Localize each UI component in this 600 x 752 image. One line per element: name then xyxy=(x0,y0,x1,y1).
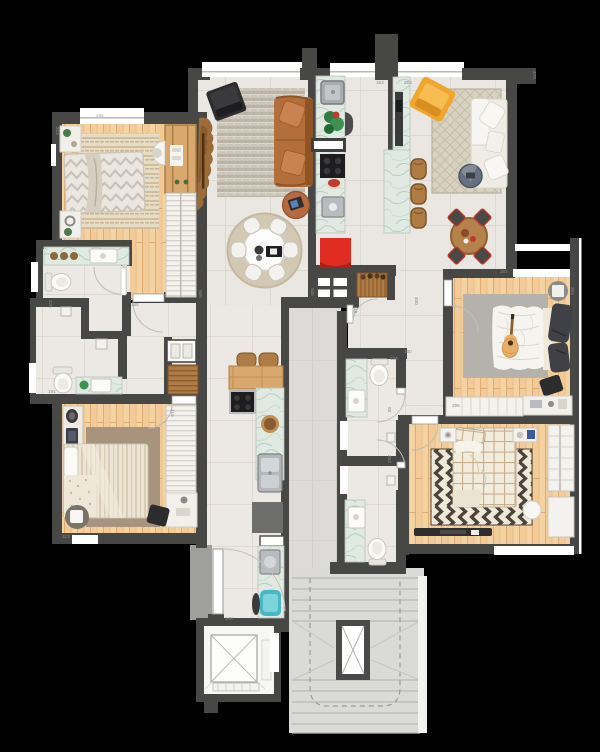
svg-text:165: 165 xyxy=(131,302,139,307)
svg-text:283: 283 xyxy=(404,80,412,85)
svg-text:283: 283 xyxy=(570,287,575,295)
svg-text:538: 538 xyxy=(310,288,315,296)
svg-text:133: 133 xyxy=(390,356,398,361)
svg-text:191: 191 xyxy=(48,389,56,394)
svg-text:163: 163 xyxy=(376,80,384,85)
svg-text:318: 318 xyxy=(170,409,175,417)
svg-text:298: 298 xyxy=(452,403,460,408)
svg-text:283: 283 xyxy=(500,269,508,274)
svg-text:555: 555 xyxy=(198,290,203,298)
svg-text:313: 313 xyxy=(62,534,70,539)
svg-text:253: 253 xyxy=(387,455,392,463)
svg-text:88: 88 xyxy=(387,407,392,413)
svg-text:118: 118 xyxy=(353,306,358,314)
svg-text:213: 213 xyxy=(55,127,60,135)
svg-text:479: 479 xyxy=(532,71,537,79)
svg-text:130: 130 xyxy=(404,349,412,354)
svg-text:148: 148 xyxy=(225,616,233,621)
svg-text:225: 225 xyxy=(48,300,53,308)
svg-text:400: 400 xyxy=(414,297,419,305)
svg-text:285: 285 xyxy=(96,113,104,118)
